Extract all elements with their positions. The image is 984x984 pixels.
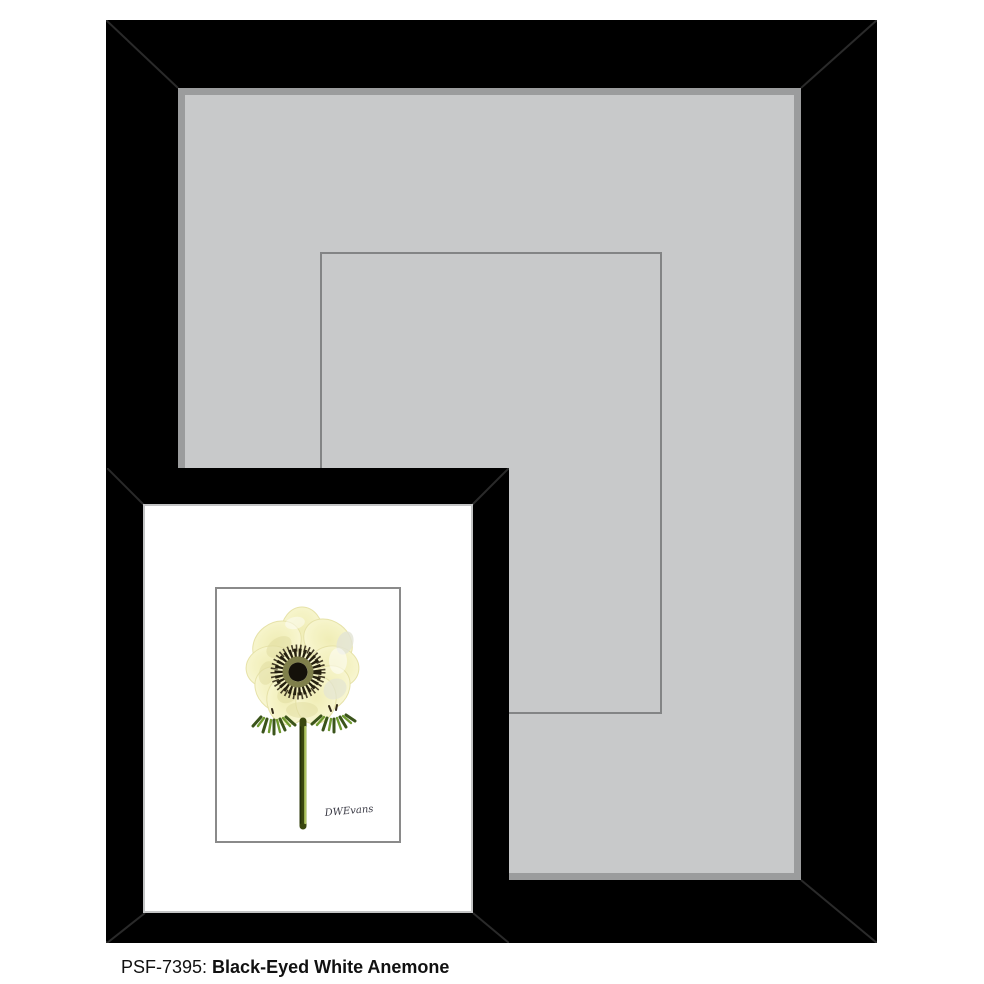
- miter-line: [107, 913, 145, 943]
- miter-line: [106, 20, 178, 88]
- miter-line: [471, 468, 509, 506]
- anemone-flower: DWEvans: [243, 607, 374, 826]
- miter-line: [801, 20, 877, 88]
- product-title: Black-Eyed White Anemone: [212, 957, 449, 977]
- product-caption: PSF-7395:Black-Eyed White Anemone: [121, 955, 449, 979]
- product-mockup: DWEvans PSF-7395:Black-Eyed White Anemon…: [0, 0, 984, 984]
- bract: [329, 719, 331, 730]
- petal-shade: [286, 702, 318, 718]
- miter-line: [107, 468, 145, 506]
- miter-line: [801, 880, 877, 943]
- artist-signature: DWEvans: [323, 804, 374, 819]
- black-eye: [289, 663, 308, 682]
- product-sku: PSF-7395:: [121, 957, 207, 977]
- petal-highlight: [329, 648, 347, 674]
- inset-frame: DWEvans: [107, 468, 509, 943]
- white-mat: DWEvans: [143, 504, 473, 913]
- bract-tip: [272, 709, 273, 713]
- anemone-print: DWEvans: [215, 587, 401, 843]
- bract-tip: [336, 705, 337, 710]
- flower-stem: [301, 721, 306, 826]
- anemone-illustration: DWEvans: [217, 589, 399, 841]
- miter-line: [473, 913, 509, 943]
- bract: [269, 720, 271, 732]
- bract: [263, 719, 267, 732]
